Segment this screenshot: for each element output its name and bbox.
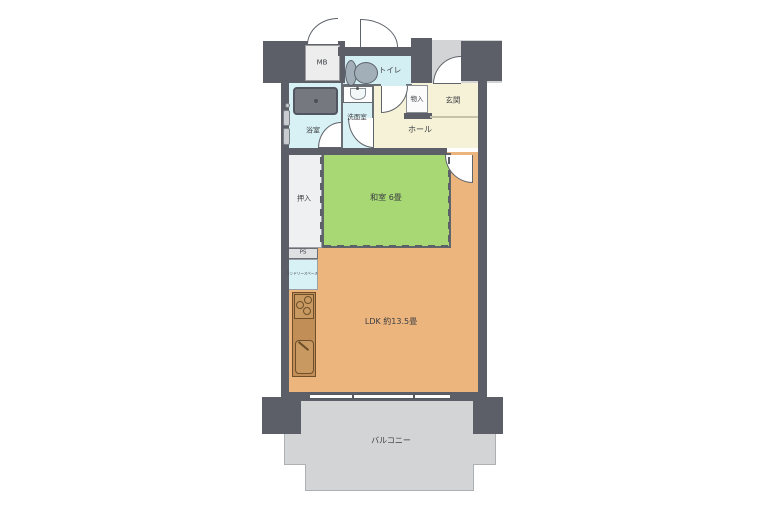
sliding-door-japanese-room-bottom (324, 245, 448, 247)
pillar-top-right (461, 41, 502, 81)
wall-middle (281, 148, 447, 155)
label-balcony: バルコニー (371, 437, 411, 445)
wall-right (478, 79, 487, 402)
label-meter-box: MB (317, 60, 328, 67)
wall-toilet-top (338, 47, 414, 56)
label-storage: 物入 (411, 96, 424, 103)
balcony-area-upper (284, 399, 496, 465)
pillar-bottom-right (473, 397, 503, 434)
wall-toilet-right (411, 38, 432, 83)
shower-panel-icon (283, 128, 290, 145)
sliding-door-closet (320, 157, 322, 246)
stove-burner-icon (304, 296, 312, 304)
door-arc-meter-box (307, 18, 338, 45)
shower-panel-icon (283, 110, 290, 126)
entrance-step-line (430, 116, 478, 118)
window-balcony (310, 394, 450, 399)
label-hall: ホール (408, 126, 432, 134)
bathtub-drain-icon (314, 99, 318, 103)
label-pipe-space: PS (300, 250, 307, 256)
floor-plan: MB トイレ 物入 玄関 浴室 洗面室 ホール 押入 和室 6畳 PS ランドリ… (0, 0, 770, 513)
window-mullion (352, 394, 354, 399)
toilet-bowl-icon (354, 62, 378, 84)
label-closet: 押入 (297, 196, 311, 203)
label-ldk: LDK 約13.5畳 (365, 318, 417, 326)
window-mullion (413, 394, 415, 399)
label-toilet: トイレ (379, 66, 402, 74)
label-bathroom: 浴室 (306, 128, 320, 135)
door-arc-corridor (360, 19, 398, 47)
pillar-bottom-left (262, 397, 301, 434)
washbasin-faucet-icon (356, 87, 359, 90)
label-entrance: 玄関 (446, 96, 461, 104)
sliding-door-japanese-room-right (448, 157, 450, 246)
shower-knob-icon (285, 103, 290, 108)
stove-burner-icon (303, 307, 311, 315)
wall-under-storage (404, 113, 432, 119)
label-japanese-room: 和室 6畳 (370, 194, 402, 202)
label-laundry-space: ランドリースペース (286, 272, 318, 276)
label-washroom: 洗面室 (347, 114, 367, 121)
balcony-area-lower (305, 464, 474, 491)
